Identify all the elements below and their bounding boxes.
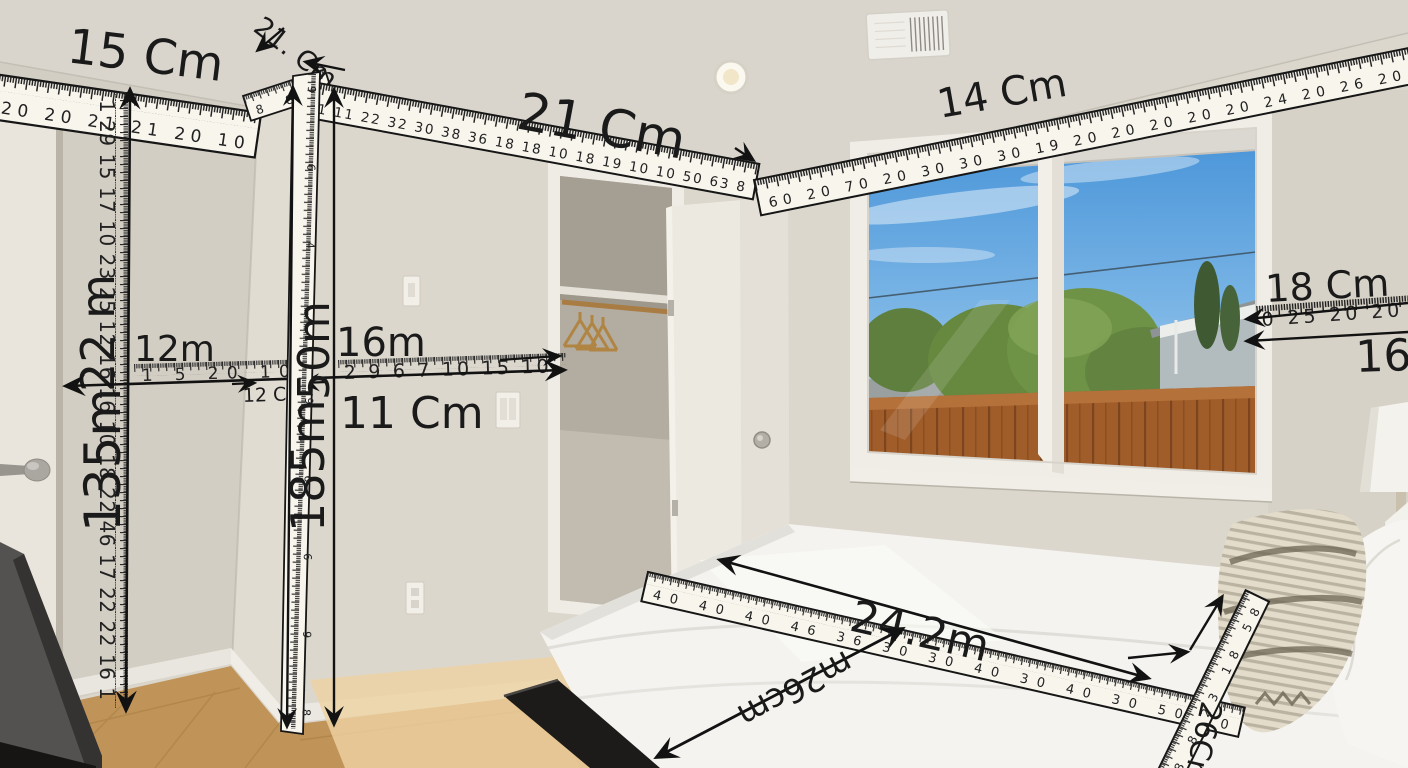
label-corner-height-lower: 185m <box>281 399 335 532</box>
label-corner-height-upper: 50m <box>289 301 340 400</box>
conifer-tree <box>1220 285 1240 351</box>
switch-plate <box>496 392 520 428</box>
door-hinge <box>668 300 674 316</box>
switch-rocker <box>408 283 415 297</box>
door-handle-rosette <box>24 459 50 481</box>
closet <box>548 162 684 624</box>
recessed-light-bulb <box>723 69 739 85</box>
window-mullion <box>1038 131 1052 472</box>
ceiling-vent <box>866 10 950 60</box>
outlet-socket <box>411 588 419 596</box>
label-mid-horizontal: 16m <box>336 320 426 366</box>
cloud <box>855 247 995 263</box>
label-left-horizontal: 12m <box>134 329 215 370</box>
label-right-wall: 18 Cm <box>1264 261 1390 311</box>
label-right-wall-below: 16m <box>1355 329 1408 383</box>
outlet-plate <box>406 582 424 614</box>
light-switch-double <box>496 392 520 428</box>
switch-rocker <box>500 398 507 420</box>
label-mid-horizontal-below: 11 Cm <box>340 388 484 439</box>
window-mullion-shadow <box>1052 130 1064 474</box>
door-handle-highlight <box>27 462 39 470</box>
wall-outlet <box>406 582 424 614</box>
bedroom-photo: 20 20 21 21 20 10 15 Cm 8 8 8 21. Cm 11 … <box>0 0 1408 768</box>
closet-interior-upper <box>560 176 672 298</box>
knob-highlight <box>757 435 763 441</box>
label-left-height-lower: 135m <box>74 388 132 532</box>
scene: 20 20 21 21 20 10 15 Cm 8 8 8 21. Cm 11 … <box>0 0 1408 768</box>
label-left-height-upper: 22 m <box>71 274 125 392</box>
conifer-tree <box>1194 261 1220 349</box>
door-hinge <box>672 500 678 516</box>
room-door-edge <box>56 94 63 702</box>
outlet-socket <box>411 600 419 608</box>
switch-rocker <box>509 398 516 420</box>
